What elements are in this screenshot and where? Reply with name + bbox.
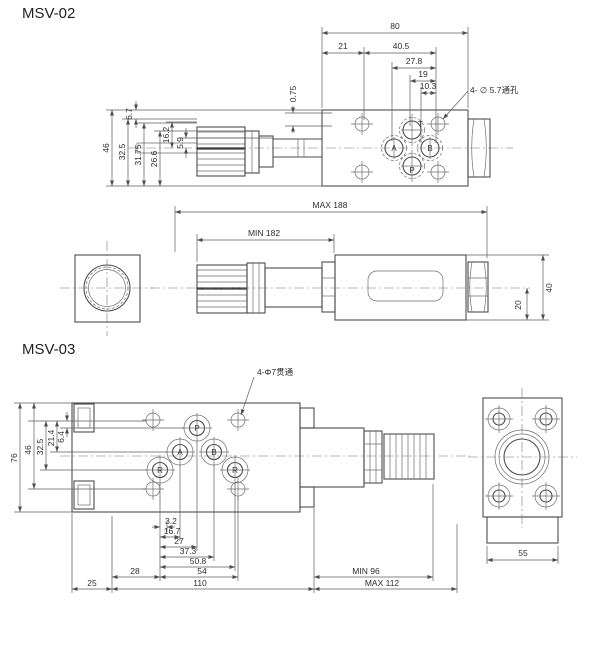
dim-21-4: 21.4 bbox=[46, 429, 56, 446]
port-label-r-left: R bbox=[157, 466, 163, 475]
dim-27: 27 bbox=[174, 536, 184, 546]
dim-25: 25 bbox=[87, 578, 97, 588]
dim-37-3: 37.3 bbox=[180, 546, 197, 556]
dim-0-75: 0.75 bbox=[288, 85, 298, 102]
dim-16-7: 16.7 bbox=[164, 526, 181, 536]
dim-40-5: 40.5 bbox=[393, 41, 410, 51]
msv02-title: MSV-02 bbox=[22, 5, 75, 22]
port-label-a: A bbox=[391, 144, 397, 153]
dim-54: 54 bbox=[197, 566, 207, 576]
msv02-hole-note: 4- ∅ 5.7通孔 bbox=[470, 85, 519, 95]
port-label-b: B bbox=[211, 448, 216, 457]
dim-min-96: MIN 96 bbox=[352, 566, 380, 576]
msv03-knob bbox=[384, 434, 434, 479]
msv03-mounting-holes bbox=[142, 409, 249, 500]
msv03-view: MSV-03 4-Φ7贯通 bbox=[9, 341, 577, 593]
port-label-r-right: R bbox=[232, 466, 238, 475]
dim-32-5b: 32.5 bbox=[35, 438, 45, 455]
dim-20: 20 bbox=[513, 300, 523, 310]
msv02-view: MSV-02 bbox=[22, 5, 554, 336]
dim-32-5: 32.5 bbox=[117, 143, 127, 160]
drawing-canvas: MSV-02 bbox=[0, 0, 600, 649]
msv02-front-view: MAX 188 MIN 182 bbox=[60, 200, 554, 336]
msv03-bottom-dimensions: 3.2 16.7 27 37.3 50.8 54 28 25 110 MIN 9… bbox=[72, 442, 457, 593]
dim-16-2: 16.2 bbox=[161, 126, 171, 143]
body-slot bbox=[368, 271, 443, 301]
msv03-locknut bbox=[364, 431, 382, 483]
port-label-b: B bbox=[427, 144, 432, 153]
dim-80: 80 bbox=[390, 21, 400, 31]
dim-3-2: 3.2 bbox=[165, 516, 177, 526]
msv03-hole-note: 4-Φ7贯通 bbox=[257, 367, 294, 377]
dim-28: 28 bbox=[130, 566, 140, 576]
dim-110: 110 bbox=[193, 578, 207, 588]
port-label-a: A bbox=[177, 448, 183, 457]
dim-19: 19 bbox=[418, 69, 428, 79]
dim-55: 55 bbox=[518, 548, 528, 558]
valve-body bbox=[335, 255, 466, 320]
valve-drawing: MSV-02 bbox=[0, 0, 600, 649]
dim-76: 76 bbox=[9, 453, 19, 463]
dim-max-188: MAX 188 bbox=[313, 200, 348, 210]
dim-50-8: 50.8 bbox=[190, 556, 207, 566]
dim-5-9: 5.9 bbox=[175, 137, 185, 149]
dim-min-182: MIN 182 bbox=[248, 228, 280, 238]
dim-31-75: 31.75 bbox=[133, 144, 143, 166]
msv03-plan-view: P A B R R bbox=[60, 403, 470, 512]
dim-27-8: 27.8 bbox=[406, 56, 423, 66]
dim-46: 46 bbox=[101, 143, 111, 153]
dim-max-112: MAX 112 bbox=[365, 578, 400, 588]
msv03-side-view: 55 bbox=[468, 388, 577, 564]
dim-40: 40 bbox=[544, 283, 554, 293]
dim-26-6: 26.6 bbox=[149, 150, 159, 167]
msv03-plate bbox=[72, 403, 300, 512]
msv03-body bbox=[300, 428, 364, 487]
adjust-knob bbox=[197, 127, 245, 176]
dim-10-3: 10.3 bbox=[420, 81, 437, 91]
port-label-p: P bbox=[409, 166, 414, 175]
dim-6-4: 6.4 bbox=[56, 431, 66, 443]
port-label-t: T bbox=[418, 120, 423, 129]
msv03-ports: P A B R R bbox=[145, 413, 250, 485]
dim-46b: 46 bbox=[23, 445, 33, 455]
msv03-title: MSV-03 bbox=[22, 341, 75, 358]
right-hex-nut bbox=[468, 262, 488, 312]
dim-6-7: 6.7 bbox=[124, 108, 134, 120]
dim-21: 21 bbox=[338, 41, 348, 51]
port-label-p: P bbox=[194, 424, 199, 433]
